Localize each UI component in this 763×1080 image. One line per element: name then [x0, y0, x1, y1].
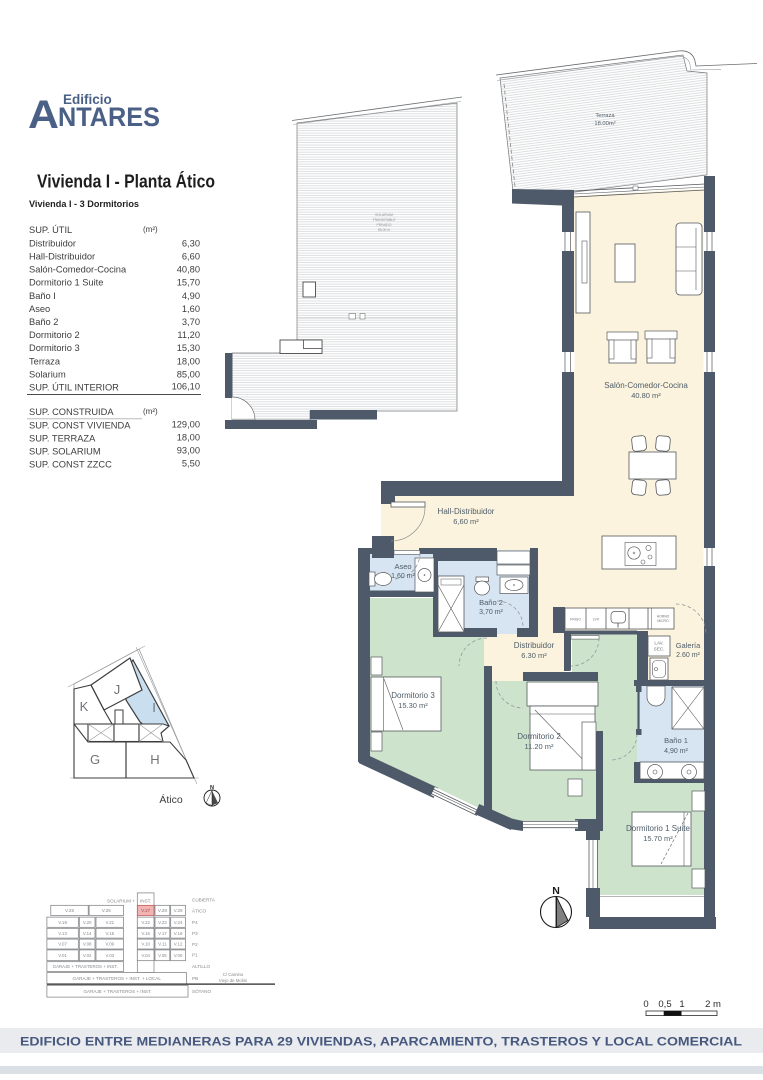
svg-text:FRIGO: FRIGO — [570, 618, 581, 622]
svg-text:3,70 m²: 3,70 m² — [479, 609, 503, 616]
svg-text:2 m: 2 m — [705, 999, 721, 1010]
svg-text:Salón-Comedor-Cocina: Salón-Comedor-Cocina — [29, 265, 127, 275]
svg-text:V.20: V.20 — [83, 920, 92, 925]
svg-text:Baño 2: Baño 2 — [479, 598, 503, 607]
svg-text:SUP. CONSTRUIDA: SUP. CONSTRUIDA — [29, 407, 114, 417]
svg-text:N: N — [552, 885, 560, 897]
svg-text:Baño 1: Baño 1 — [664, 736, 688, 745]
svg-text:V.21: V.21 — [105, 920, 114, 925]
svg-text:SUP. CONST ZZCC: SUP. CONST ZZCC — [29, 459, 112, 469]
svg-text:18,00: 18,00 — [177, 433, 200, 443]
svg-text:V.12: V.12 — [174, 942, 183, 947]
svg-text:V.29: V.29 — [174, 908, 183, 913]
svg-text:6,30: 6,30 — [182, 238, 200, 248]
svg-text:85,00: 85,00 — [177, 369, 200, 379]
svg-text:V.13: V.13 — [58, 931, 67, 936]
svg-text:11.20 m²: 11.20 m² — [524, 742, 554, 751]
svg-text:V.18: V.18 — [174, 931, 183, 936]
svg-text:PB: PB — [192, 976, 198, 981]
svg-text:6.30 m²: 6.30 m² — [521, 651, 547, 660]
svg-text:V.26: V.26 — [102, 908, 111, 913]
svg-text:CUBIERTA: CUBIERTA — [192, 898, 216, 903]
svg-text:HORNO: HORNO — [657, 615, 670, 619]
svg-text:5,50: 5,50 — [182, 458, 200, 468]
svg-text:V.05: V.05 — [158, 953, 167, 958]
svg-text:H: H — [150, 752, 159, 767]
svg-text:Vivienda I - Planta Ático: Vivienda I - Planta Ático — [37, 171, 215, 192]
svg-text:Terraza: Terraza — [29, 356, 61, 366]
svg-text:0,5: 0,5 — [658, 999, 671, 1010]
svg-text:P2: P2 — [192, 942, 198, 947]
svg-text:G: G — [90, 752, 100, 767]
svg-text:18,00: 18,00 — [177, 356, 200, 366]
svg-text:Terraza: Terraza — [595, 113, 615, 119]
svg-text:V.19: V.19 — [58, 920, 67, 925]
svg-text:GARAJE + TRASTEROS + INST.: GARAJE + TRASTEROS + INST. — [53, 964, 118, 969]
svg-text:INST.: INST. — [140, 899, 151, 904]
svg-text:P3: P3 — [192, 931, 198, 936]
svg-text:11,20: 11,20 — [177, 330, 200, 340]
svg-text:SUP. SOLARIUM: SUP. SOLARIUM — [29, 447, 101, 457]
svg-text:V.25: V.25 — [65, 908, 74, 913]
svg-text:V.04: V.04 — [141, 953, 150, 958]
svg-text:K: K — [80, 699, 89, 714]
svg-text:V.22: V.22 — [141, 920, 150, 925]
svg-text:Aseo: Aseo — [29, 304, 50, 314]
svg-text:93,00: 93,00 — [177, 446, 200, 456]
svg-text:GARAJE + TRASTEROS + INST.: GARAJE + TRASTEROS + INST. — [83, 989, 151, 994]
svg-text:18.00m²: 18.00m² — [594, 121, 615, 127]
svg-text:V.08: V.08 — [83, 942, 92, 947]
svg-text:V.06: V.06 — [174, 953, 183, 958]
svg-text:A: A — [28, 93, 59, 137]
svg-text:ALTILLO: ALTILLO — [192, 964, 210, 969]
svg-text:Dormitorio 3: Dormitorio 3 — [391, 691, 435, 700]
svg-text:Hall-Distribuidor: Hall-Distribuidor — [29, 252, 95, 262]
svg-text:V.17: V.17 — [158, 931, 167, 936]
svg-text:Galería: Galería — [676, 641, 701, 650]
svg-text:Ático: Ático — [159, 793, 183, 806]
svg-text:Hall-Distribuidor: Hall-Distribuidor — [438, 507, 495, 516]
svg-text:Distribuidor: Distribuidor — [514, 641, 555, 650]
svg-text:V.01: V.01 — [58, 953, 67, 958]
svg-text:Dormitorio 2: Dormitorio 2 — [29, 330, 80, 340]
svg-text:1: 1 — [679, 999, 684, 1010]
svg-text:85.00 m: 85.00 m — [378, 228, 390, 232]
svg-text:V.07: V.07 — [58, 942, 67, 947]
svg-text:V.28: V.28 — [158, 908, 167, 913]
svg-text:40,80: 40,80 — [177, 265, 200, 275]
svg-text:SOLARIUM +: SOLARIUM + — [107, 899, 135, 904]
svg-text:SUP. ÚTIL: SUP. ÚTIL — [29, 225, 72, 235]
svg-text:LVV: LVV — [593, 618, 600, 622]
svg-text:EDIFICIO ENTRE MEDIANERAS PARA: EDIFICIO ENTRE MEDIANERAS PARA 29 VIVIEN… — [20, 1035, 742, 1049]
svg-text:SUP. TERRAZA: SUP. TERRAZA — [29, 434, 96, 444]
svg-text:SUP. ÚTIL INTERIOR: SUP. ÚTIL INTERIOR — [29, 383, 119, 393]
svg-text:15,30: 15,30 — [177, 343, 200, 353]
svg-text:TRANSITABLE: TRANSITABLE — [373, 218, 397, 222]
svg-text:Dormitorio 1 Suite: Dormitorio 1 Suite — [29, 278, 103, 288]
svg-text:V.24: V.24 — [174, 920, 183, 925]
svg-text:Baño I: Baño I — [29, 291, 56, 301]
svg-text:Baño 2: Baño 2 — [29, 317, 58, 327]
svg-text:V.15: V.15 — [105, 931, 114, 936]
svg-text:V.27: V.27 — [141, 908, 150, 913]
svg-text:Aseo: Aseo — [394, 562, 411, 571]
svg-text:(m²): (m²) — [143, 225, 158, 234]
svg-text:15,70: 15,70 — [177, 278, 200, 288]
svg-text:SUP. CONST VIVIENDA: SUP. CONST VIVIENDA — [29, 421, 131, 431]
svg-text:V.02: V.02 — [83, 953, 92, 958]
svg-text:Dormitorio 2: Dormitorio 2 — [517, 732, 561, 741]
svg-text:LAV.: LAV. — [654, 641, 663, 646]
svg-text:I: I — [152, 700, 156, 715]
svg-text:SEC.: SEC. — [654, 647, 665, 652]
svg-text:15.30 m²: 15.30 m² — [398, 701, 428, 710]
svg-text:GARAJE + TRASTEROS + INST. + L: GARAJE + TRASTEROS + INST. + LOCAL — [73, 976, 162, 981]
svg-text:0: 0 — [643, 999, 648, 1010]
svg-text:1,60 m²: 1,60 m² — [391, 573, 415, 580]
svg-text:Edificio: Edificio — [63, 92, 112, 107]
svg-text:4,90: 4,90 — [182, 291, 200, 301]
svg-text:V.10: V.10 — [141, 942, 150, 947]
svg-text:SOLARIUM: SOLARIUM — [375, 213, 393, 217]
svg-text:3,70: 3,70 — [182, 317, 200, 327]
svg-text:V.16: V.16 — [141, 931, 150, 936]
svg-text:129,00: 129,00 — [172, 420, 200, 430]
svg-text:V.11: V.11 — [158, 942, 167, 947]
svg-text:Salón-Comedor-Cocina: Salón-Comedor-Cocina — [604, 381, 688, 390]
svg-text:J: J — [114, 682, 121, 697]
svg-text:15.70 m²: 15.70 m² — [643, 834, 673, 843]
svg-text:ÁTICO: ÁTICO — [192, 908, 206, 914]
svg-text:6,60: 6,60 — [182, 252, 200, 262]
svg-text:Dormitorio 1 Suite: Dormitorio 1 Suite — [626, 824, 691, 833]
svg-text:40.80 m²: 40.80 m² — [631, 391, 661, 400]
svg-text:Viejo de Molini: Viejo de Molini — [219, 978, 247, 983]
svg-text:V.09: V.09 — [105, 942, 114, 947]
svg-text:SÓTANO: SÓTANO — [192, 988, 211, 994]
svg-text:Dormitorio 3: Dormitorio 3 — [29, 343, 80, 353]
svg-text:MICRO: MICRO — [657, 619, 669, 623]
svg-text:2.60 m²: 2.60 m² — [676, 652, 700, 659]
svg-text:P4: P4 — [192, 920, 198, 925]
svg-text:106,10: 106,10 — [172, 382, 200, 392]
svg-text:P1: P1 — [192, 953, 198, 958]
svg-text:V.03: V.03 — [105, 953, 114, 958]
svg-text:Distribuidor: Distribuidor — [29, 238, 76, 248]
svg-text:V.23: V.23 — [158, 920, 167, 925]
svg-text:Vivienda I - 3 Dormitorios: Vivienda I - 3 Dormitorios — [29, 199, 139, 210]
svg-text:C/ Camino: C/ Camino — [223, 972, 244, 977]
svg-text:6,60 m²: 6,60 m² — [453, 517, 479, 526]
svg-text:(m²): (m²) — [143, 407, 158, 416]
svg-text:V.14: V.14 — [83, 931, 92, 936]
svg-text:1,60: 1,60 — [182, 304, 200, 314]
svg-text:Solarium: Solarium — [29, 369, 66, 379]
svg-text:PRIVADO: PRIVADO — [376, 223, 391, 227]
svg-text:4,90 m²: 4,90 m² — [664, 748, 688, 755]
